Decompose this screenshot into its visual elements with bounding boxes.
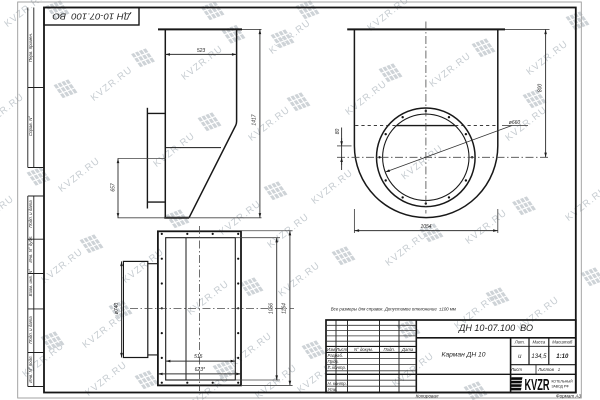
svg-text:Пров.: Пров. (328, 359, 339, 364)
svg-text:Масса: Масса (533, 340, 546, 345)
svg-text:Изм: Изм (327, 347, 335, 352)
svg-text:657: 657 (110, 183, 116, 192)
svg-text:Карман ДН 10: Карман ДН 10 (442, 351, 486, 358)
svg-text:KVZR: KVZR (525, 377, 550, 394)
svg-text:ø740: ø740 (114, 303, 120, 315)
svg-text:1:10: 1:10 (556, 354, 569, 360)
svg-text:Копировал: Копировал (416, 393, 439, 398)
svg-text:Дата: Дата (401, 347, 414, 352)
svg-text:КОТЕЛЬНЫЙ: КОТЕЛЬНЫЙ (552, 380, 574, 384)
svg-text:Листов: Листов (537, 367, 554, 372)
svg-text:80: 80 (335, 129, 341, 135)
svg-text:Разраб.: Разраб. (328, 353, 344, 358)
svg-text:Масштаб: Масштаб (552, 340, 573, 345)
svg-text:Формат А3: Формат А3 (556, 393, 582, 398)
svg-text:1164: 1164 (281, 303, 287, 314)
svg-text:Взам. инв. N°: Взам. инв. N° (28, 269, 33, 297)
svg-text:ЗАВОД РФ: ЗАВОД РФ (552, 385, 569, 389)
svg-text:1056: 1056 (269, 303, 275, 314)
svg-text:ДН 10-07.100 ВО: ДН 10-07.100 ВО (458, 323, 533, 333)
svg-text:Подп. и дата: Подп. и дата (28, 200, 33, 228)
svg-text:Лист: Лист (510, 367, 522, 372)
svg-text:Лит.: Лит. (514, 340, 525, 345)
svg-text:Подп.: Подп. (383, 347, 394, 352)
svg-text:Т. контр.: Т. контр. (328, 365, 347, 370)
svg-text:523: 523 (197, 48, 206, 54)
svg-text:515: 515 (194, 354, 203, 360)
svg-text:Н. контр.: Н. контр. (328, 381, 347, 386)
svg-text:Справ. N°: Справ. N° (28, 116, 33, 136)
svg-text:ДН 10-07.100 ВО: ДН 10-07.100 ВО (52, 11, 131, 20)
svg-text:Лист: Лист (335, 347, 347, 352)
svg-text:Подп. и дата: Подп. и дата (28, 316, 33, 344)
svg-text:Инв. N° подл.: Инв. N° подл. (28, 355, 33, 382)
svg-text:Утв.: Утв. (328, 387, 338, 392)
svg-text:623*: 623* (195, 367, 206, 373)
svg-text:ø660: ø660 (509, 120, 521, 126)
svg-text:Все размеры для справок. Допус: Все размеры для справок. Допустимое откл… (331, 306, 457, 312)
svg-text:N° докум.: N° докум. (354, 347, 373, 352)
svg-text:Перв. примен.: Перв. примен. (28, 33, 33, 62)
svg-text:1417: 1417 (252, 114, 258, 125)
svg-text:800: 800 (538, 84, 544, 93)
svg-text:Инв. N° дубл.: Инв. N° дубл. (28, 235, 33, 262)
svg-text:1054: 1054 (420, 224, 431, 230)
svg-text:134,5: 134,5 (531, 354, 547, 360)
